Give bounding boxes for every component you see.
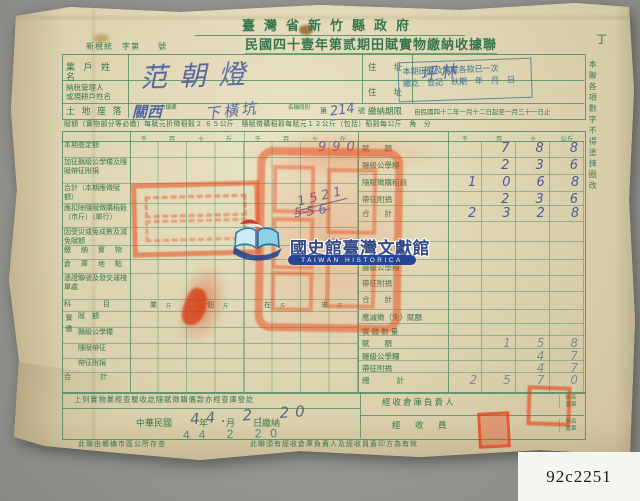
land-no-prefix: 第 (320, 108, 327, 116)
row-label: 繳 納 實 物 (64, 247, 130, 256)
date-stamp: 44 2 20 (183, 426, 286, 442)
owner-name-handwritten: 范朝燈 (139, 52, 257, 95)
seal-pattern (271, 271, 314, 312)
table-row: 帶征附捐 (62, 359, 358, 373)
owner-name-label: 業 戶 姓 名 (66, 62, 126, 83)
row-value: 1068 (468, 175, 604, 190)
row-label: 隨賦帶征 (78, 345, 144, 354)
row-label: 科 目 (64, 301, 130, 310)
clerk-seal-icon (477, 411, 511, 449)
catalog-number: 92c2251 (546, 467, 612, 487)
row-label: 因受災或免成數及減免賦額 (64, 229, 130, 247)
deadline-value: 自民國四十二年一月十二日起至一月三十一日止 (414, 109, 594, 116)
deadline-label: 繳納期限 (368, 107, 402, 117)
row-value: 158 (468, 336, 604, 350)
land-location-label: 土 地 座 落 (66, 106, 126, 116)
info-line (362, 54, 363, 103)
clerk-label: 經 收 員 (392, 421, 450, 431)
row-label: 總 計 (362, 375, 446, 386)
watermark: 國史館臺灣文獻館 TAIWAN HISTORICA (228, 214, 458, 268)
taiwan-historica-logo-icon (228, 216, 286, 262)
copy-mark: 丁 (596, 34, 607, 47)
row-label: 本期查定額 (64, 142, 130, 151)
warehouse-head-label: 經收倉庫負責人 (382, 398, 456, 408)
row-label: 合 計 (64, 374, 130, 383)
row-value: 2328 (468, 206, 604, 221)
address-label-2: 住 址 (368, 88, 402, 98)
registry-stamp-box: 本期田賦及隨賦各款已一次 繳訖 登記 秋期 年 月 日 (397, 58, 532, 103)
paper-shadow: 臺灣省新竹縣政府 新梘統 字第 號 民國四十壹年第贰期田賦實物繳納收據聯 丁 本… (0, 0, 640, 501)
verified-note: 上列實物業經查驗收訖隨賦徵購價款亦經查庫發訖 (74, 396, 360, 404)
row-label: 憑證聯號及發交運棧單處 (64, 275, 130, 293)
subject-unit: 斤 (166, 304, 172, 310)
paper-right-shading (614, 4, 636, 459)
document-title: 民國四十壹年第贰期田賦實物繳納收據聯 (245, 38, 497, 54)
row-value: 236 (468, 158, 604, 173)
document-paper: 臺灣省新竹縣政府 新梘統 字第 號 民國四十壹年第贰期田賦實物繳納收據聯 丁 本… (0, 0, 640, 501)
watermark-org-name-en: TAIWAN HISTORICA (288, 255, 416, 265)
manager-label-line2: 或現耕戶姓名 (66, 93, 111, 102)
table-row: 合 計 (62, 373, 358, 392)
row-label: 應扣除隨賦徵購稻穀（市斤）（單行） (64, 205, 130, 223)
seal-label: 蓋章 (560, 426, 582, 433)
land-section-suffix: 名稱段別 (288, 105, 310, 111)
footnote-right: 此聯須有經收倉庫負責人及經收員蓋印方為有效 (250, 441, 418, 449)
agency-title: 臺灣省新竹縣政府 (195, 19, 465, 36)
serial-number-line: 新梘統 字第 號 (86, 42, 167, 51)
seal-pattern (272, 165, 315, 214)
row-label: 合計（本期應徵賦額） (64, 185, 130, 203)
catalog-label: 92c2251 (518, 452, 640, 501)
info-line (128, 54, 129, 118)
photo-background: 臺灣省新竹縣政府 新梘統 字第 號 民國四十壹年第贰期田賦實物繳納收據聯 丁 本… (0, 0, 640, 501)
subject-col: 業 (150, 302, 157, 310)
land-township-suffix: 市鎮鄉 (160, 105, 177, 111)
land-township-handwritten: 關西 (132, 101, 162, 122)
paper-left-shading (6, 0, 64, 465)
row-label: 縣級公學糧 (78, 329, 144, 338)
row-label: 帶征附捐 (78, 360, 144, 369)
paid-group-label: 實繳 (64, 314, 72, 336)
land-no-suffix: 號 (358, 108, 365, 116)
table-row: 帶征附捐47 (358, 361, 584, 373)
warehouse-head-seal-icon (526, 385, 571, 427)
row-value: 236 (468, 192, 604, 207)
row-label: 倉 庫 地 點 (64, 261, 130, 270)
row-label: 賦 額 (78, 313, 144, 322)
footnote-left: 此聯由鄉鎮市區公所存查 (78, 441, 166, 449)
row-label: 加征縣級公學糧及隨賦帶征附捐 (64, 159, 130, 177)
row-value: 788 (468, 141, 604, 156)
